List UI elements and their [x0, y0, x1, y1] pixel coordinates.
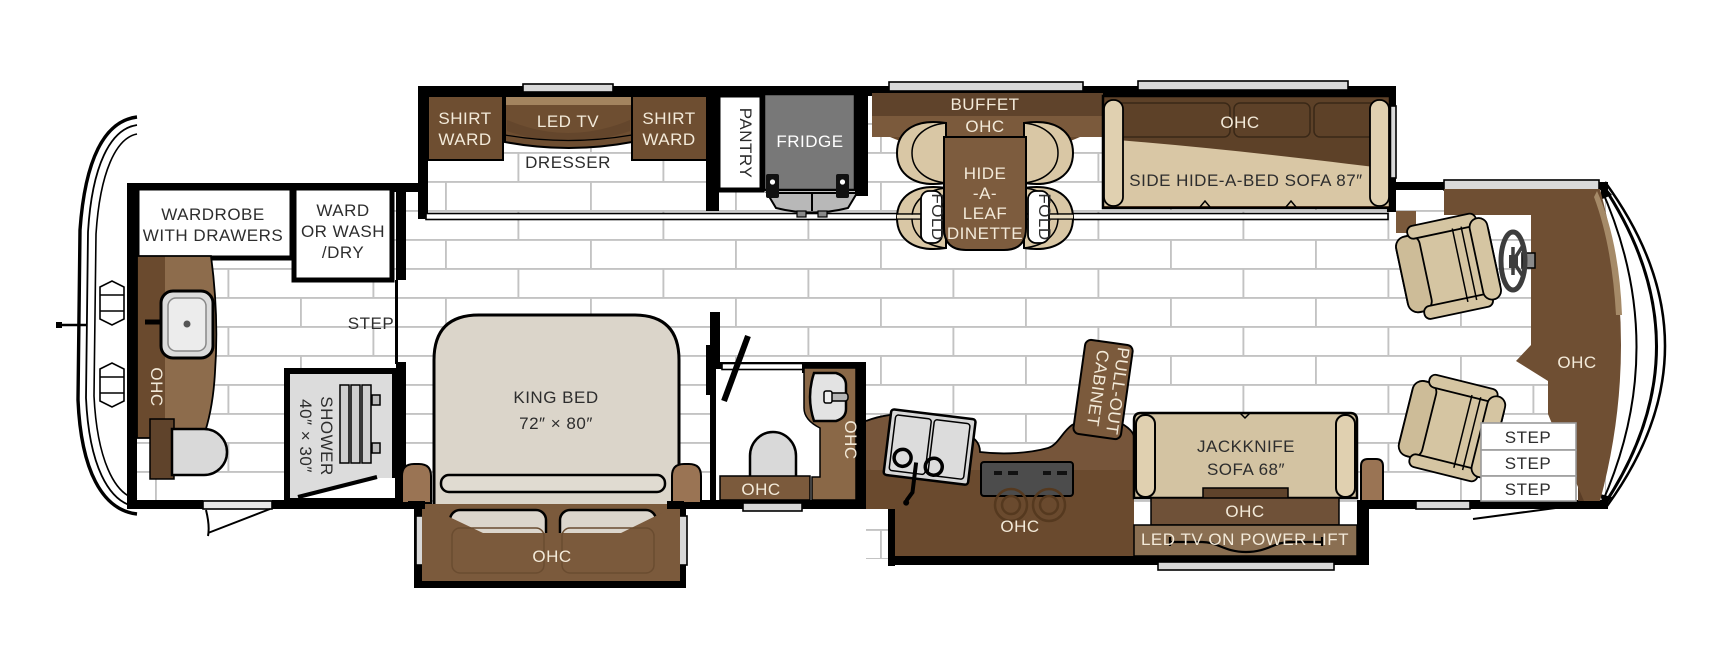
svg-text:OHC: OHC: [741, 480, 780, 499]
svg-text:WARD: WARD: [438, 130, 491, 149]
svg-text:LED TV ON POWER LIFT: LED TV ON POWER LIFT: [1141, 530, 1349, 549]
svg-text:SHOWER: SHOWER: [317, 396, 336, 476]
svg-text:SOFA 68″: SOFA 68″: [1207, 460, 1285, 479]
svg-text:OHC: OHC: [965, 117, 1004, 136]
svg-text:OHC: OHC: [1220, 113, 1259, 132]
svg-text:JACKKNIFE: JACKKNIFE: [1197, 437, 1295, 456]
svg-text:FOLD: FOLD: [1035, 193, 1054, 240]
svg-text:STEP: STEP: [1505, 480, 1551, 499]
svg-text:OHC: OHC: [841, 420, 860, 459]
svg-text:OHC: OHC: [532, 547, 571, 566]
svg-text:40″ × 30″: 40″ × 30″: [296, 399, 315, 473]
svg-text:STEP: STEP: [1505, 454, 1551, 473]
svg-text:STEP: STEP: [348, 314, 394, 333]
svg-text:OR WASH: OR WASH: [301, 222, 385, 241]
svg-text:WITH DRAWERS: WITH DRAWERS: [143, 226, 283, 245]
svg-text:OHC: OHC: [1000, 517, 1039, 536]
svg-text:HIDE: HIDE: [964, 164, 1007, 183]
svg-text:DINETTE: DINETTE: [947, 224, 1023, 243]
svg-text:OHC: OHC: [1557, 353, 1596, 372]
svg-text:SHIRT: SHIRT: [642, 109, 695, 128]
svg-text:BUFFET: BUFFET: [950, 95, 1019, 114]
svg-text:72″ × 80″: 72″ × 80″: [519, 414, 593, 433]
svg-text:WARD: WARD: [316, 201, 369, 220]
svg-text:WARD: WARD: [642, 130, 695, 149]
svg-text:/DRY: /DRY: [322, 243, 364, 262]
svg-text:DRESSER: DRESSER: [525, 153, 611, 172]
svg-text:LEAF: LEAF: [963, 204, 1008, 223]
svg-text:SHIRT: SHIRT: [438, 109, 491, 128]
svg-text:SIDE HIDE-A-BED SOFA 87″: SIDE HIDE-A-BED SOFA 87″: [1129, 171, 1362, 190]
svg-text:OHC: OHC: [1225, 502, 1264, 521]
svg-text:WARDROBE: WARDROBE: [161, 205, 265, 224]
svg-text:STEP: STEP: [1505, 428, 1551, 447]
svg-text:-A-: -A-: [973, 184, 997, 203]
svg-text:PANTRY: PANTRY: [736, 108, 755, 178]
svg-text:FRIDGE: FRIDGE: [776, 132, 843, 151]
svg-text:LED TV: LED TV: [537, 112, 599, 131]
svg-text:KING BED: KING BED: [513, 388, 598, 407]
svg-text:OHC: OHC: [147, 367, 166, 406]
